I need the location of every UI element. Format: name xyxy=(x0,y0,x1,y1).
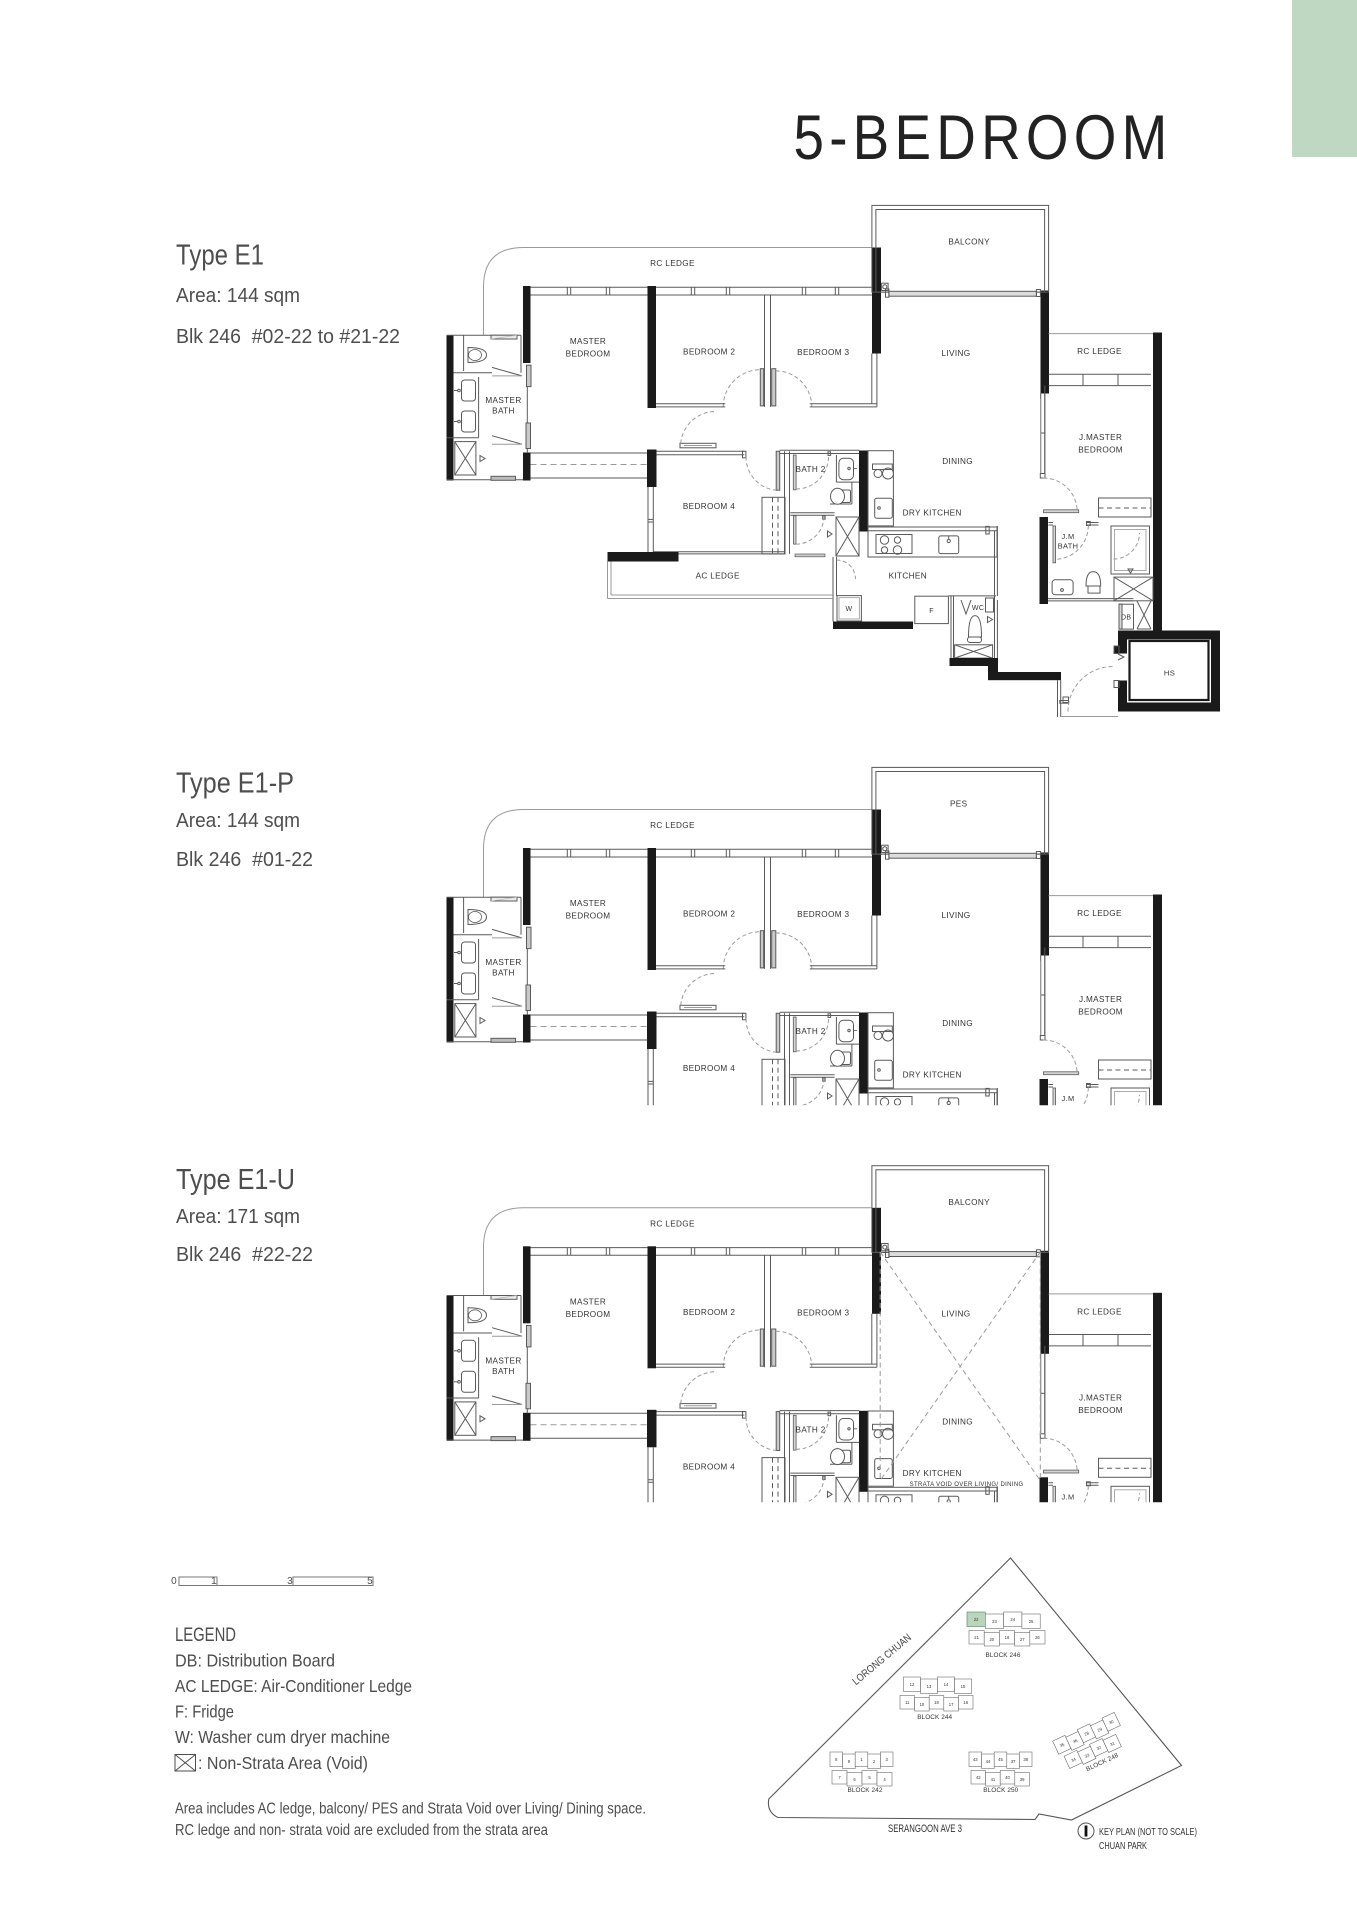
svg-text:43: 43 xyxy=(973,1757,978,1762)
svg-text:24: 24 xyxy=(1010,1617,1015,1622)
svg-text:RC ledge and non- strata void: RC ledge and non- strata void are exclud… xyxy=(175,1822,548,1839)
svg-text:25: 25 xyxy=(1029,1619,1034,1624)
svg-text:44: 44 xyxy=(986,1759,991,1764)
svg-text:37: 37 xyxy=(1011,1759,1016,1764)
svg-text:14: 14 xyxy=(944,1682,949,1687)
svg-text:3: 3 xyxy=(287,1576,293,1587)
svg-text:Area: 144 sqm: Area: 144 sqm xyxy=(176,285,300,307)
svg-text:45: 45 xyxy=(998,1757,1003,1762)
svg-text:23: 23 xyxy=(992,1619,997,1624)
svg-text:18: 18 xyxy=(934,1700,939,1705)
svg-text:Blk 246 #22-22: Blk 246 #22-22 xyxy=(176,1244,313,1266)
svg-text:BLOCK 244: BLOCK 244 xyxy=(917,1714,952,1721)
svg-text:LEGEND: LEGEND xyxy=(175,1625,236,1646)
svg-text:17: 17 xyxy=(949,1702,954,1707)
svg-text:Blk 246 #02-22 to #21-22: Blk 246 #02-22 to #21-22 xyxy=(176,326,400,348)
svg-text:1: 1 xyxy=(211,1576,217,1587)
svg-text:AC LEDGE: Air-Conditioner Ledg: AC LEDGE: Air-Conditioner Ledge xyxy=(175,1676,412,1696)
svg-text:KEY PLAN (NOT TO SCALE): KEY PLAN (NOT TO SCALE) xyxy=(1099,1826,1197,1838)
svg-text:CHUAN PARK: CHUAN PARK xyxy=(1099,1840,1147,1852)
svg-text:Area: 171 sqm: Area: 171 sqm xyxy=(176,1206,300,1228)
svg-text:BALCONY: BALCONY xyxy=(948,1198,990,1207)
svg-text:40: 40 xyxy=(1005,1775,1010,1780)
svg-text:21: 21 xyxy=(974,1635,979,1640)
svg-text:PES: PES xyxy=(950,800,968,809)
svg-text:0: 0 xyxy=(171,1576,177,1587)
svg-text:5: 5 xyxy=(367,1576,373,1587)
svg-text:BLOCK 250: BLOCK 250 xyxy=(983,1787,1018,1794)
svg-text:12: 12 xyxy=(910,1682,915,1687)
svg-text:F: Fridge: F: Fridge xyxy=(175,1702,234,1722)
svg-text:20: 20 xyxy=(989,1637,994,1642)
svg-text:5-BEDROOM: 5-BEDROOM xyxy=(794,103,1173,173)
svg-text:19: 19 xyxy=(1005,1635,1010,1640)
svg-text:SERANGOON AVE 3: SERANGOON AVE 3 xyxy=(888,1823,962,1835)
svg-text:39: 39 xyxy=(1020,1777,1025,1782)
svg-text:26: 26 xyxy=(1035,1635,1040,1640)
svg-text:16: 16 xyxy=(963,1700,968,1705)
svg-text:Area includes AC ledge, balcon: Area includes AC ledge, balcony/ PES and… xyxy=(175,1801,646,1818)
svg-text:13: 13 xyxy=(927,1684,932,1689)
svg-text:Area: 144 sqm: Area: 144 sqm xyxy=(176,810,300,832)
svg-text:Type E1-U: Type E1-U xyxy=(176,1164,295,1196)
svg-text:STRATA VOID OVER LIVING/ DININ: STRATA VOID OVER LIVING/ DINING xyxy=(910,1482,1024,1488)
svg-text:BALCONY: BALCONY xyxy=(948,238,990,247)
svg-text:DB: Distribution Board: DB: Distribution Board xyxy=(175,1651,335,1671)
svg-text:10: 10 xyxy=(920,1702,925,1707)
svg-text:Type E1: Type E1 xyxy=(176,240,264,272)
svg-text:W: Washer cum dryer machine: W: Washer cum dryer machine xyxy=(175,1727,390,1747)
svg-text:38: 38 xyxy=(1023,1757,1028,1762)
svg-text:Blk 246 #01-22: Blk 246 #01-22 xyxy=(176,849,313,871)
svg-text:: Non-Strata Area (Void): : Non-Strata Area (Void) xyxy=(198,1753,368,1773)
svg-text:11: 11 xyxy=(905,1700,910,1705)
svg-text:27: 27 xyxy=(1020,1637,1025,1642)
svg-text:42: 42 xyxy=(976,1775,981,1780)
svg-text:Type E1-P: Type E1-P xyxy=(176,768,294,800)
svg-text:BLOCK 242: BLOCK 242 xyxy=(847,1787,882,1794)
svg-text:15: 15 xyxy=(961,1684,966,1689)
svg-text:41: 41 xyxy=(991,1777,996,1782)
svg-text:22: 22 xyxy=(974,1617,979,1622)
svg-text:BLOCK 246: BLOCK 246 xyxy=(985,1652,1020,1659)
